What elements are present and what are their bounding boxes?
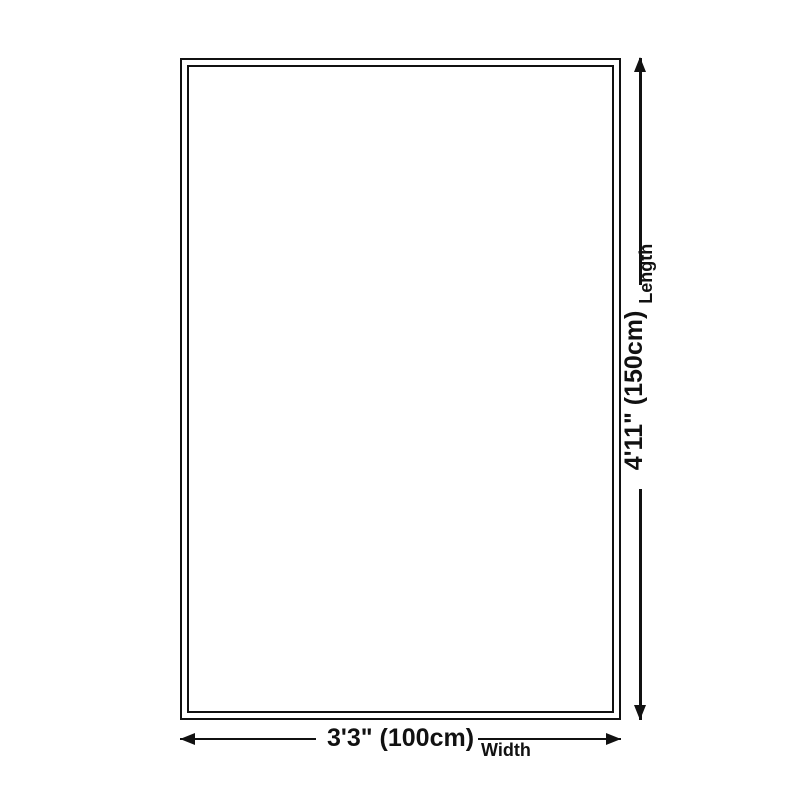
width-value: 3'3" (100cm) <box>327 726 474 751</box>
rug-dimension-diagram: 4'11" (150cm) Length 3'3" (100cm) Width <box>0 0 800 800</box>
length-label: Length <box>637 244 655 304</box>
arrow-right-icon <box>606 733 621 745</box>
rug-outline <box>180 58 621 720</box>
arrow-left-icon <box>180 733 195 745</box>
arrow-up-icon <box>634 57 646 72</box>
arrow-down-icon <box>634 705 646 720</box>
length-dimension: 4'11" (150cm) Length <box>622 237 650 477</box>
length-dimension-line-lower <box>639 489 642 720</box>
width-dimension-line-left <box>180 738 316 741</box>
length-value: 4'11" (150cm) <box>622 311 647 471</box>
width-dimension: 3'3" (100cm) Width <box>327 726 531 751</box>
width-label: Width <box>481 741 531 759</box>
rug-outline-inner-border <box>187 65 614 713</box>
